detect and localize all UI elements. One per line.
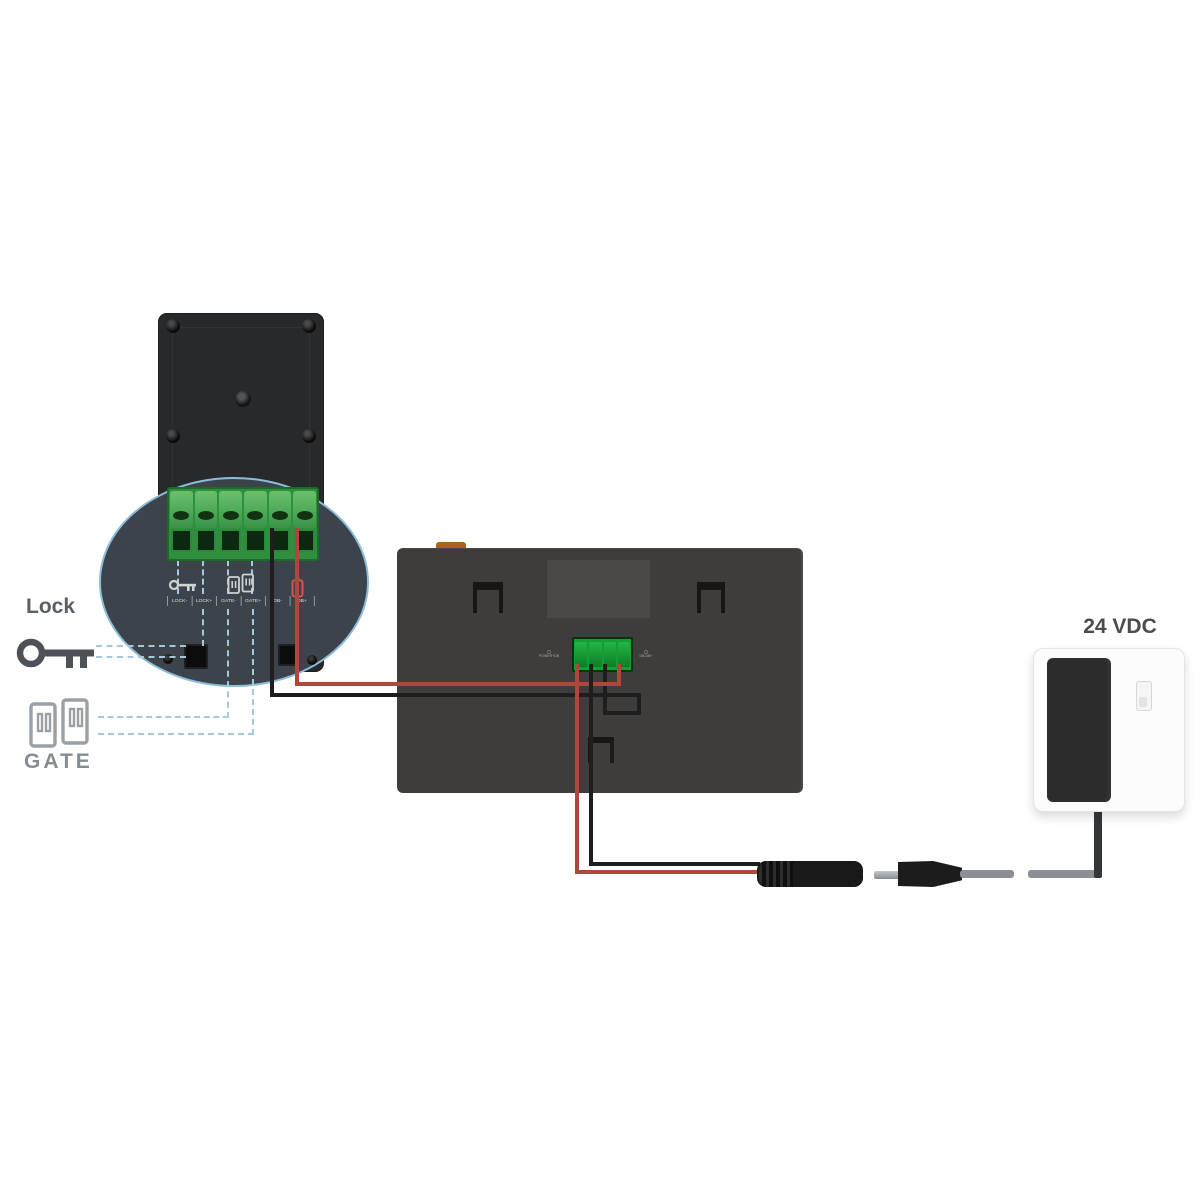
lock-key-icon	[16, 630, 98, 676]
doorbell-icon	[644, 650, 648, 654]
bottom-port-left	[184, 644, 208, 669]
terminal-opening	[220, 529, 241, 552]
gate-guide-line-vertical	[227, 609, 229, 718]
terminal-tick	[202, 560, 204, 594]
screw-icon	[166, 319, 180, 333]
adapter-cable-segment	[1028, 870, 1102, 878]
black-wire	[270, 528, 274, 697]
lock-guide-line-vertical	[202, 609, 204, 646]
terminal-label: GATE-	[216, 596, 240, 606]
center-hole	[235, 391, 251, 407]
wiring-diagram: LOCK- LOCK+ GATE- GATE+ DB- DB+ Lock GAT…	[0, 0, 1200, 1200]
screw-icon	[307, 655, 317, 665]
mount-hook-left	[473, 582, 503, 613]
terminal-opening	[171, 529, 192, 552]
dc-male-plug	[898, 861, 962, 887]
black-power-wire	[589, 862, 760, 866]
terminal-label: LOCK-	[167, 596, 191, 606]
mount-hook-right	[697, 582, 725, 613]
gate-guide-line-vertical	[252, 609, 254, 735]
key-icon	[168, 577, 198, 594]
black-wire	[603, 664, 607, 715]
monitor-right-port-label: DB-DB+	[631, 650, 661, 659]
power-adapter	[1047, 658, 1111, 802]
red-power-wire	[575, 870, 760, 874]
monitor-left-port-label: POWER+DB	[534, 650, 564, 659]
red-wire	[295, 528, 299, 686]
terminal-label: GATE+	[240, 596, 264, 606]
terminal-label-row: LOCK- LOCK+ GATE- GATE+ DB- DB+	[167, 596, 315, 606]
terminal-screw	[244, 491, 267, 528]
black-wire	[603, 711, 641, 715]
red-wire	[617, 664, 621, 686]
lock-guide-line	[96, 656, 186, 658]
terminal-opening	[245, 529, 266, 552]
adapter-cable-segment	[960, 870, 1014, 878]
terminal-screw	[195, 491, 218, 528]
screw-icon	[302, 319, 316, 333]
power-label: 24 VDC	[1060, 615, 1180, 639]
gate-label: GATE	[24, 750, 93, 774]
terminal-label: LOCK+	[191, 596, 215, 606]
dc-plug-tip	[874, 871, 900, 879]
red-power-wire	[575, 664, 579, 874]
lock-label: Lock	[26, 595, 75, 619]
gate-icon	[227, 573, 255, 595]
black-power-wire	[589, 664, 593, 866]
lock-guide-line	[96, 645, 186, 647]
power-icon	[547, 650, 551, 654]
screw-icon	[302, 429, 316, 443]
red-wire	[295, 682, 621, 686]
terminal-screws-row	[169, 489, 317, 529]
terminal-label: DB+	[289, 596, 314, 606]
terminal-screw	[170, 491, 193, 528]
screw-icon	[166, 429, 180, 443]
black-wire	[270, 693, 641, 697]
terminal-opening	[196, 529, 217, 552]
terminal-label: DB-	[265, 596, 289, 606]
gate-guide-line	[98, 716, 229, 718]
power-switch	[1136, 681, 1152, 711]
gate-door-icon	[28, 698, 92, 750]
terminal-screw	[293, 491, 316, 528]
terminal-screw	[269, 491, 292, 528]
monitor-recess	[547, 560, 650, 618]
terminal-screw	[219, 491, 242, 528]
dc-female-connector	[757, 861, 863, 887]
gate-guide-line	[98, 733, 254, 735]
